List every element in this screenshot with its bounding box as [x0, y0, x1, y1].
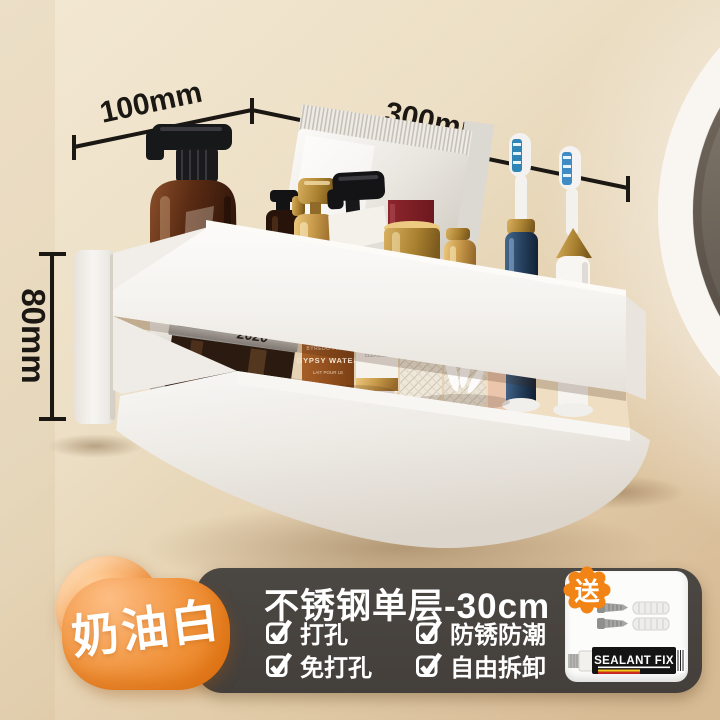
toothbrush-base — [553, 403, 593, 417]
color-option-badge: 奶油白 — [56, 556, 232, 692]
checkbox-icon — [266, 653, 290, 677]
color-name: 奶油白 — [62, 581, 229, 669]
sealant-tube: SEALANT FIX — [568, 647, 685, 674]
wall-anchor — [633, 602, 669, 614]
shelf-wall-plate — [74, 250, 116, 424]
gift-label: 送 — [563, 566, 611, 614]
feature-item: 免打孔 — [266, 653, 416, 677]
checkbox-icon — [416, 653, 440, 677]
screw — [597, 618, 628, 629]
sealant-label: SEALANT FIX — [594, 655, 674, 667]
dimension-label-height: 80mm — [15, 288, 52, 383]
wall-anchor — [633, 618, 669, 630]
checkbox-icon — [266, 620, 290, 644]
banner-panel: 不锈钢单层-30cm 打孔 防锈防潮 免打孔 — [196, 568, 702, 693]
feature-item: 打孔 — [266, 620, 416, 644]
feature-label: 免打孔 — [300, 648, 372, 683]
gift-card: SEALANT FIX — [565, 571, 688, 682]
svg-text:LAIT POUR LE: LAIT POUR LE — [313, 370, 343, 375]
gift-badge: 送 — [563, 566, 611, 614]
feature-label: 防锈防潮 — [450, 615, 546, 650]
feature-label: 打孔 — [300, 615, 348, 650]
checkbox-icon — [416, 620, 440, 644]
feature-label: 自由拆卸 — [450, 648, 546, 683]
product-listing-image: 100mm 300mm 80mm 2020 BYREDO — [0, 0, 720, 720]
